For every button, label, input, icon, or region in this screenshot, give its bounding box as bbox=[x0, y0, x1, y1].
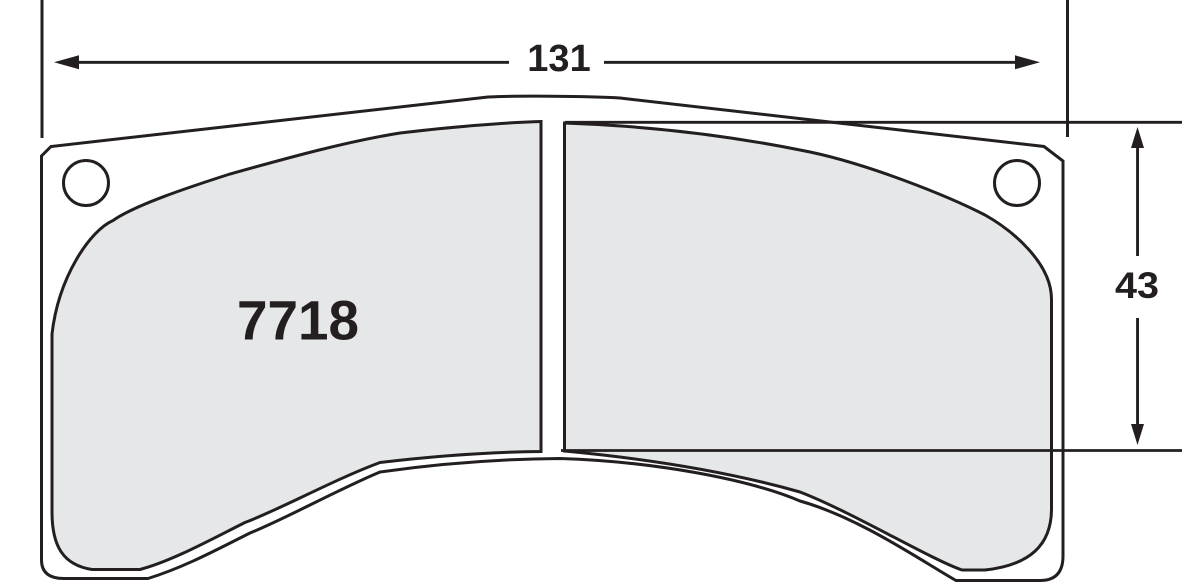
svg-text:7718: 7718 bbox=[237, 289, 359, 352]
svg-text:131: 131 bbox=[527, 38, 590, 80]
svg-text:43: 43 bbox=[1115, 265, 1159, 306]
